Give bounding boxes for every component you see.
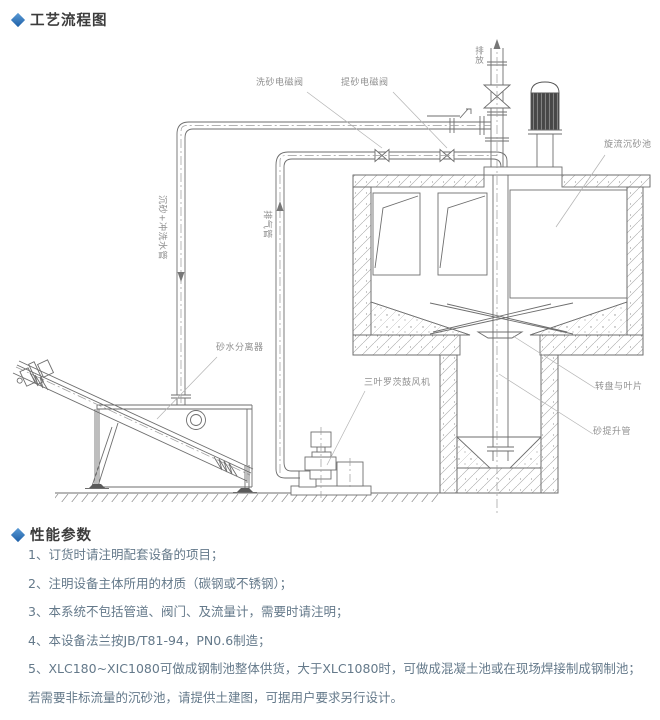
performance-item-1: 1、订货时请注明配套设备的项目； <box>28 549 653 562</box>
flow-section-title: 工艺流程图 <box>30 9 108 30</box>
label-sand-water-separator: 砂水分离器 <box>216 344 264 353</box>
performance-section-title: 性能参数 <box>30 524 92 545</box>
performance-section-header: 性能参数 <box>13 524 92 545</box>
label-cyclone-grit-tank: 旋流沉砂池 <box>604 141 652 150</box>
performance-item-5: 5、XLC180~XIC1080可做成钢制池整体供货，大于XLC1080时，可做… <box>28 663 653 676</box>
label-sand-wash-pipe: 沉砂+冲洗水管 <box>157 188 166 268</box>
grit-tank <box>353 175 650 493</box>
sand-water-separator <box>13 356 257 492</box>
label-roots-blower: 三叶罗茨鼓风机 <box>364 379 431 388</box>
diagram-linework <box>0 35 660 515</box>
label-wash-solenoid-valve: 洗砂电磁阀 <box>256 79 304 88</box>
label-disc-and-blades: 转盘与叶片 <box>595 383 643 392</box>
diamond-icon <box>11 12 25 26</box>
label-discharge: 排放 <box>474 46 483 65</box>
page: { "sections": { "flow": { "title": "工艺流程… <box>0 0 660 715</box>
performance-item-3: 3、本系统不包括管道、阀门、及流量计，需要时请注明； <box>28 606 653 619</box>
label-air-pipe: 排气管 <box>262 207 271 243</box>
roots-blower <box>291 427 371 498</box>
flow-section-header: 工艺流程图 <box>13 9 108 30</box>
performance-item-2: 2、注明设备主体所用的材质（碳钢或不锈钢）； <box>28 578 653 591</box>
performance-item-5-cont: 若需要非标流量的沉砂池，请提供土建图，可据用户要求另行设计。 <box>28 692 653 705</box>
process-flow-diagram: 洗砂电磁阀 提砂电磁阀 排放 旋流沉砂池 沉砂+冲洗水管 排气管 砂水分离器 三… <box>0 35 660 515</box>
label-sand-lift-pipe: 砂提升管 <box>593 428 631 437</box>
separator-drive <box>13 356 55 391</box>
diamond-icon <box>11 527 25 541</box>
ground <box>55 493 440 502</box>
performance-list: 1、订货时请注明配套设备的项目； 2、注明设备主体所用的材质（碳钢或不锈钢）； … <box>28 549 653 720</box>
label-lift-solenoid-valve: 提砂电磁阀 <box>341 79 389 88</box>
performance-item-4: 4、本设备法兰按JB/T81-94，PN0.6制造； <box>28 635 653 648</box>
